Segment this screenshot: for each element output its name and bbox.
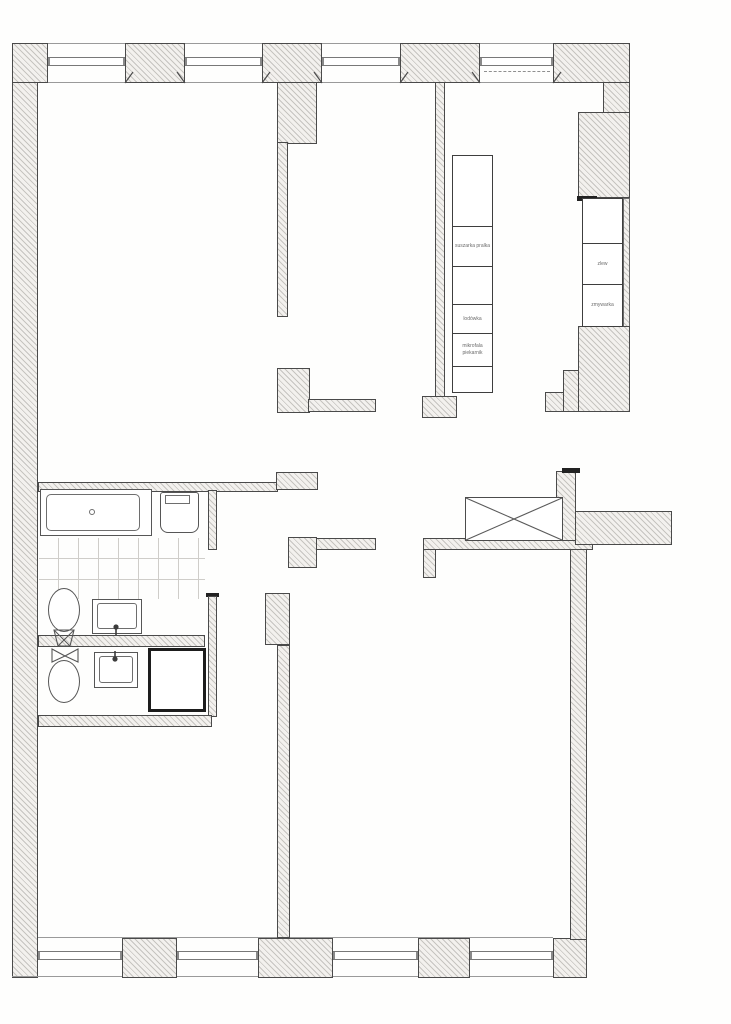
- bathroom-right-wall-upper: [208, 490, 217, 550]
- partition-bottom-rooms: [277, 645, 290, 938]
- exterior-wall-right-lower: [570, 545, 587, 940]
- bathroom-wc-divider-wall: [38, 635, 205, 647]
- exterior-wall-right-strip: [623, 198, 630, 327]
- exterior-wall-right-upper: [578, 112, 630, 198]
- shaft-box: [465, 497, 563, 541]
- toilet-bowl: [48, 660, 80, 703]
- cabinet-cell: [583, 199, 622, 243]
- window: [333, 951, 418, 960]
- window: [48, 57, 125, 66]
- exterior-wall-right-upper: [603, 82, 630, 113]
- top-wall-pier: [400, 43, 480, 83]
- right-wall-step: [563, 370, 579, 412]
- window: [480, 57, 553, 66]
- window-dashed-line: [484, 71, 550, 72]
- shower-tray: [148, 648, 206, 712]
- top-wall-corner-pier: [553, 43, 630, 83]
- hall-thin-wall-stub: [423, 549, 436, 578]
- window: [470, 951, 553, 960]
- partition-bottom-rooms-upper: [265, 593, 290, 645]
- terrace-wall-arm: [575, 511, 672, 545]
- hall-south-corner-block: [288, 537, 317, 568]
- bottom-wall-pier: [258, 938, 333, 978]
- tall-cabinet-column-right: zlew zmywarka: [582, 198, 623, 327]
- sink-basin: [99, 656, 133, 683]
- cabinet-cell: [453, 266, 492, 304]
- cabinet-cell-washer-dryer: suszarka pralka: [453, 226, 492, 266]
- wc-bottom-wall: [38, 715, 212, 727]
- top-wall-pier: [125, 43, 185, 83]
- cabinet-cell-sink: zlew: [583, 243, 622, 284]
- cabinet-cell: [453, 366, 492, 391]
- window: [322, 57, 400, 66]
- right-wall-step: [545, 392, 564, 412]
- washbasin-detail: [165, 495, 190, 504]
- cabinet-cell-fridge: lodówka: [453, 304, 492, 333]
- bathroom-right-wall-lower: [208, 596, 217, 717]
- exterior-wall-right-upper: [578, 326, 630, 412]
- bottom-wall-pier: [122, 938, 177, 978]
- top-wall-pier: [262, 43, 322, 83]
- exterior-wall-left: [12, 43, 38, 978]
- wall-cap: [562, 468, 580, 473]
- window: [177, 951, 258, 960]
- bottom-wall-corner: [553, 938, 587, 978]
- partition-room1-room2-top: [277, 82, 317, 144]
- floor-plan: suszarka pralka lodówka mikrofala piekar…: [0, 0, 731, 1024]
- partition-L-arm: [308, 399, 376, 412]
- partition-room2-room3: [435, 82, 445, 397]
- bathtub-drain: [89, 509, 95, 515]
- partition-room1-room2: [277, 142, 288, 317]
- bathroom-top-wall-step: [276, 472, 318, 490]
- window: [185, 57, 262, 66]
- window: [38, 951, 122, 960]
- top-wall-pier: [12, 43, 48, 83]
- cabinet-cell-microwave-oven: mikrofala piekarnik: [453, 333, 492, 366]
- bottom-wall-pier: [418, 938, 470, 978]
- tall-cabinet-column-left: suszarka pralka lodówka mikrofala piekar…: [452, 155, 493, 393]
- sink-basin: [97, 603, 137, 629]
- cabinet-cell: [453, 156, 492, 226]
- cabinet-cell-dishwasher: zmywarka: [583, 284, 622, 325]
- partition-foot: [422, 396, 457, 418]
- partition-L-vertical: [277, 368, 310, 413]
- toilet-bowl: [48, 588, 80, 632]
